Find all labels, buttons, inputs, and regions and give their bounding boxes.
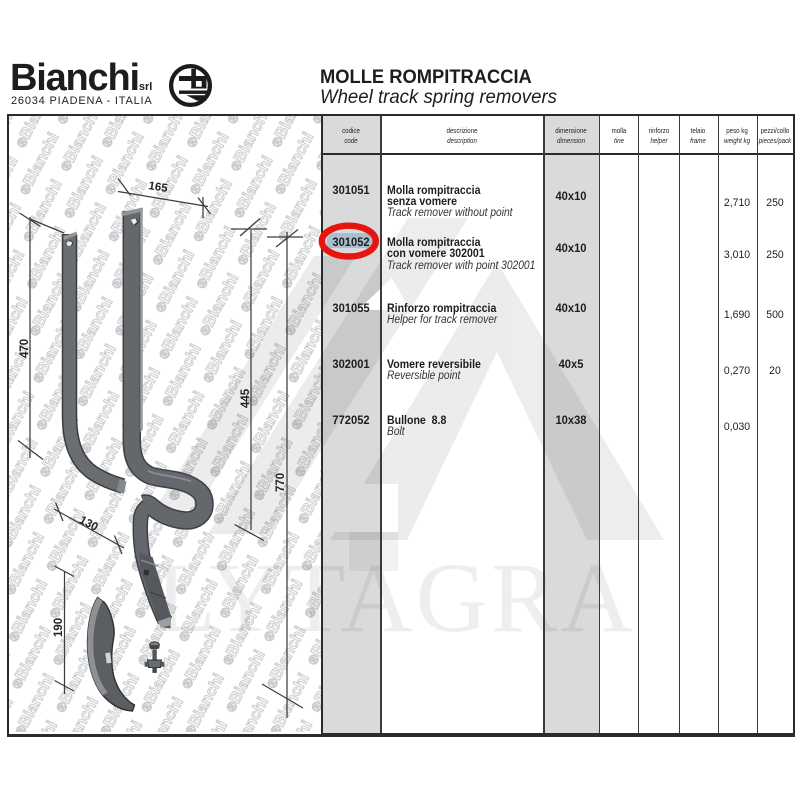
svg-text:445: 445: [240, 388, 252, 408]
svg-text:190: 190: [53, 618, 65, 637]
svg-text:130: 130: [77, 514, 100, 534]
svg-text:470: 470: [19, 339, 31, 358]
svg-text:165: 165: [148, 180, 169, 195]
svg-text:770: 770: [275, 473, 287, 492]
